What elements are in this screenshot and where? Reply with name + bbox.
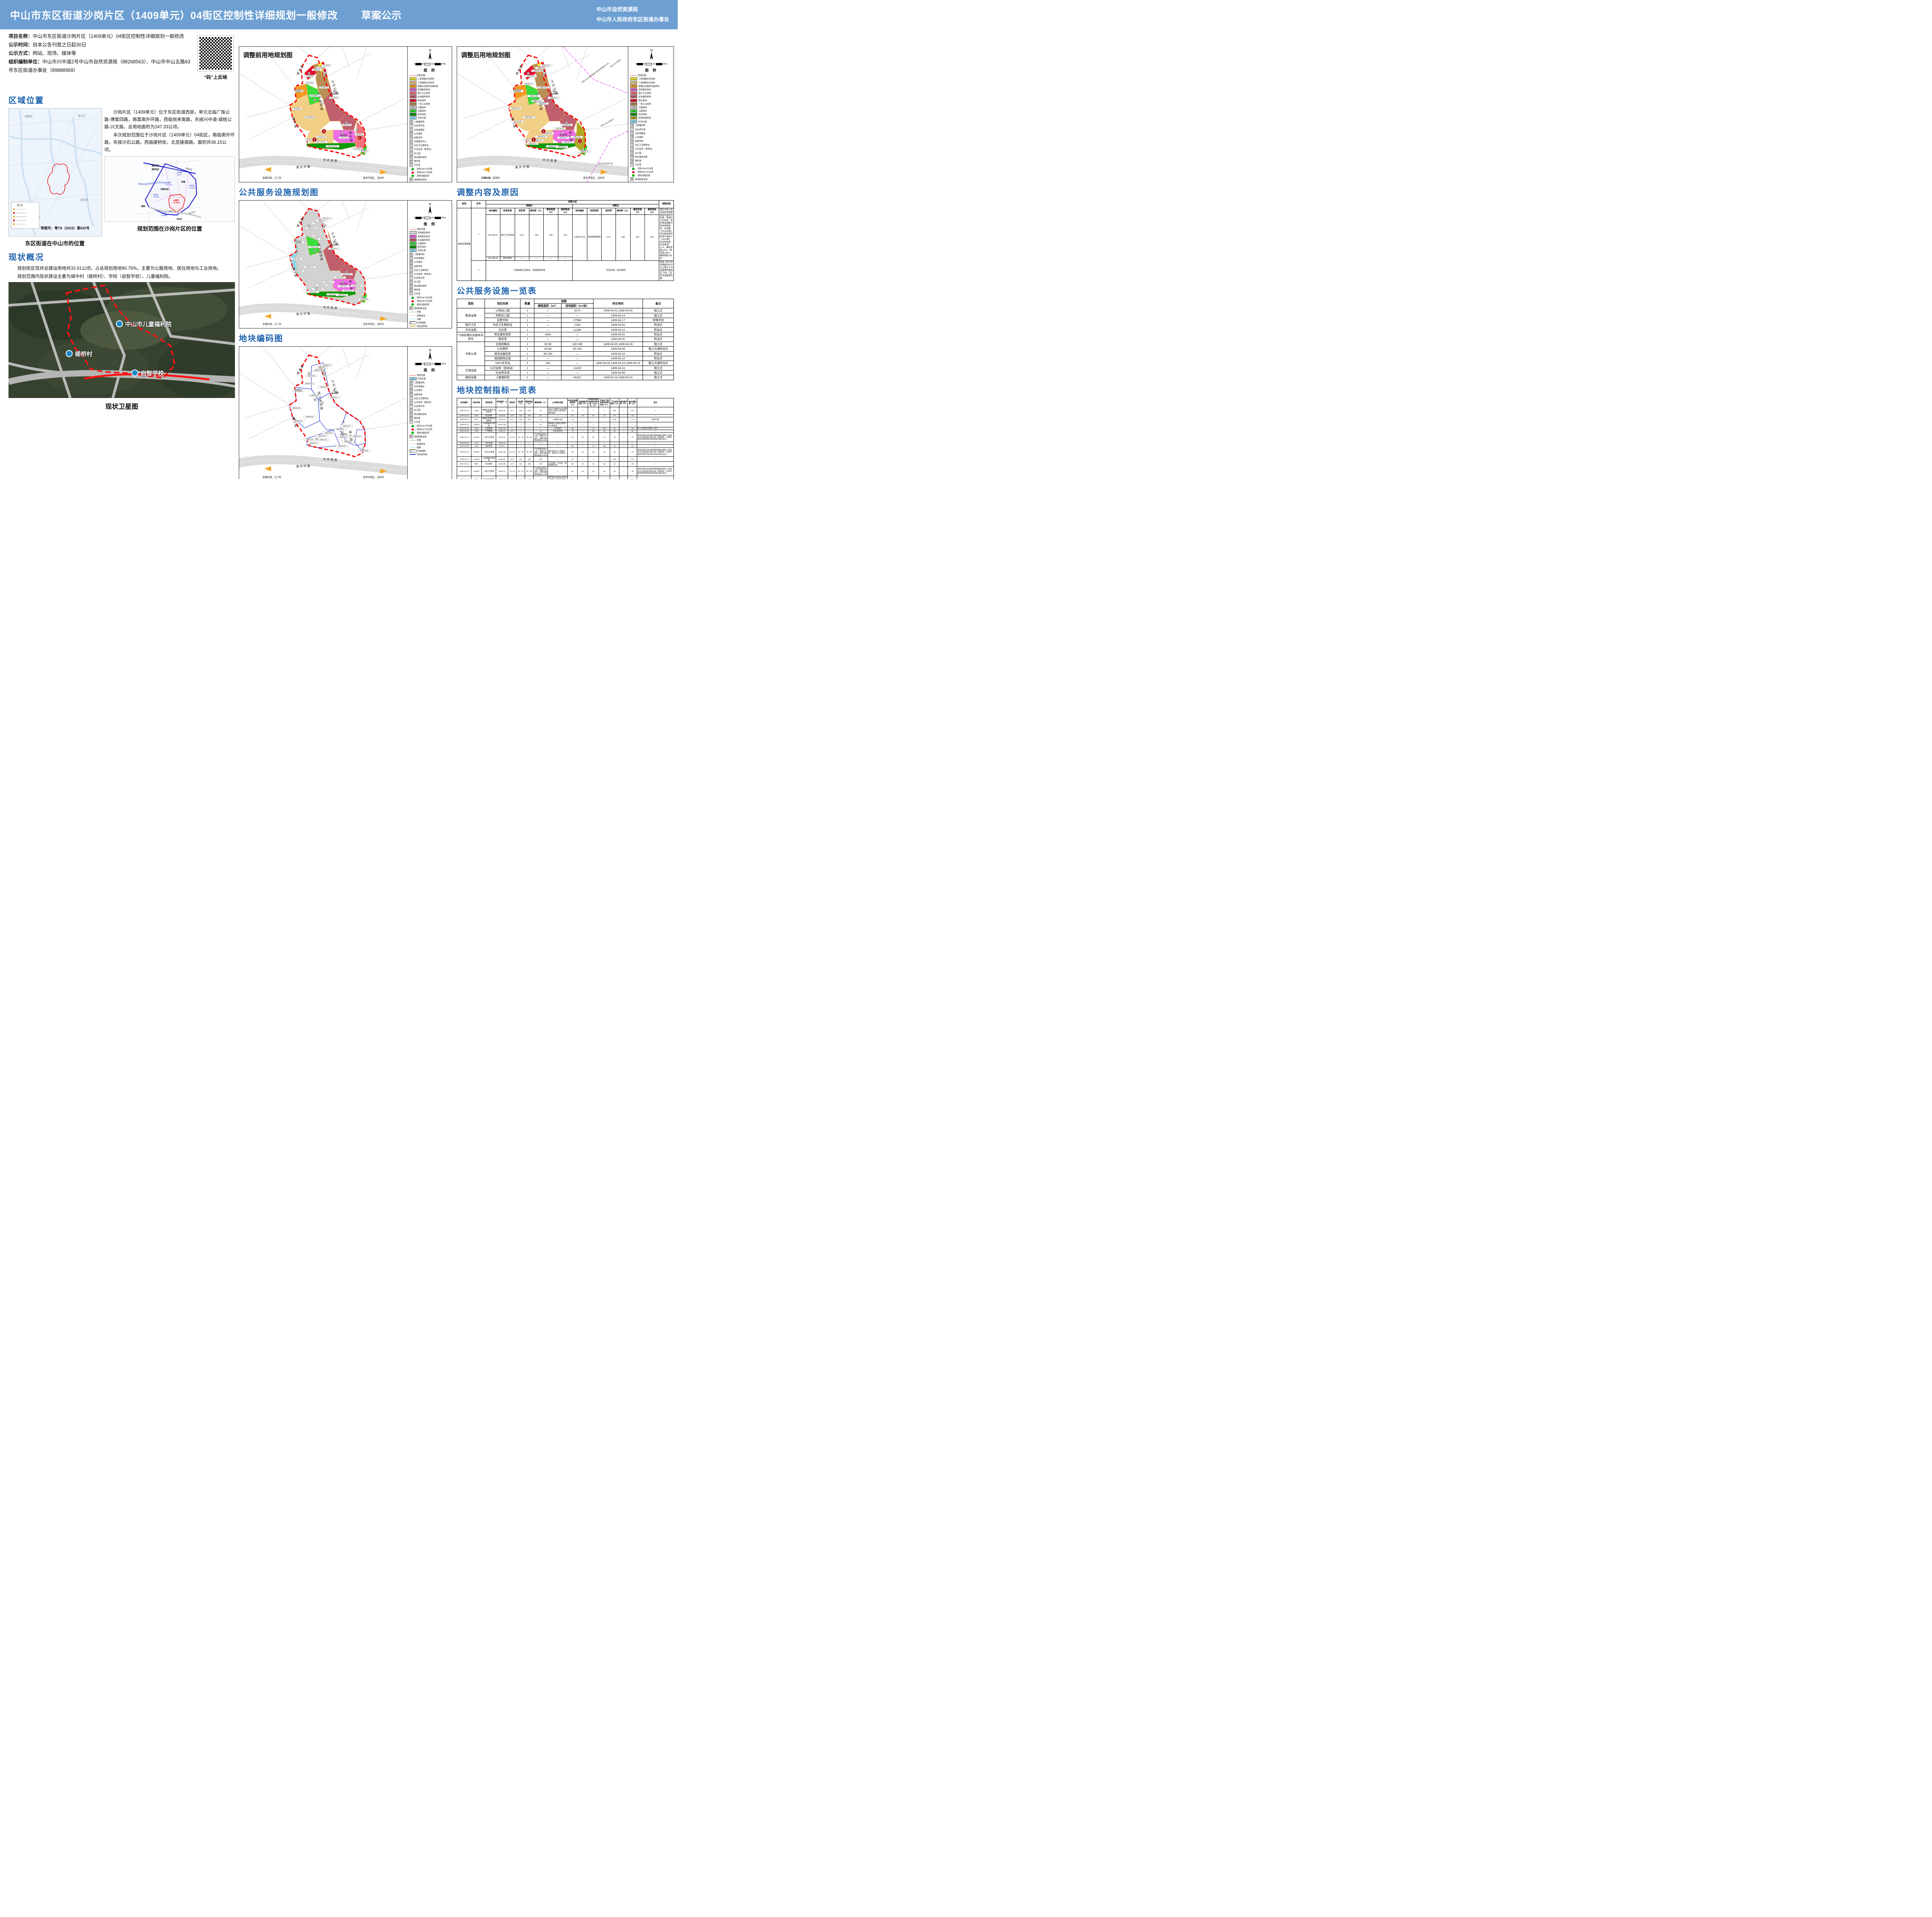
legend-label: 其他特殊用地 xyxy=(638,116,651,119)
legend-label: 防护用地 xyxy=(418,245,426,248)
control-cell: — xyxy=(548,445,568,447)
svg-text:幼: 幼 xyxy=(308,72,310,75)
middle-column: 调整前用地规划图 槎南路沙石公路规划南四路槎桥路博文路中开高速南外环路至横栏镇、… xyxy=(239,32,452,479)
control-cell: 50 xyxy=(567,447,577,457)
legend-item: 0901商业用地 xyxy=(630,99,672,102)
control-row: 1409-04-11070102二类城镇住宅用地8193.55≤2.5≥35≤3… xyxy=(457,457,674,462)
legend-chip-icon: 邮 xyxy=(410,306,413,310)
svg-text:交: 交 xyxy=(322,70,324,73)
legend-label: 公交站场（首末站） xyxy=(414,401,433,404)
legend-chip-icon xyxy=(410,375,416,376)
legend-chip-icon xyxy=(410,296,416,299)
table-cell: 10KV开关站 xyxy=(485,361,520,366)
svg-text:P: P xyxy=(322,402,323,404)
control-cell: — xyxy=(637,442,674,444)
legend-item: 垃垃圾收集站 xyxy=(630,131,672,135)
control-cell: 30 xyxy=(588,414,599,417)
table-cell: 1409-04-12 xyxy=(593,366,643,370)
legend-label: 规划邮政支局 xyxy=(414,307,427,310)
legend-item: 警警务室 xyxy=(410,416,451,420)
legend-label: 其他教育用地 xyxy=(638,88,651,91)
table-cell: 1 xyxy=(520,356,534,361)
legend-chip-icon: 警 xyxy=(630,159,634,163)
control-cell: 45 xyxy=(599,414,610,417)
services-category: 福利设施 xyxy=(457,375,485,380)
legend-label: 垃圾收集站 xyxy=(414,257,425,260)
legend-item: 物物业服务用房 xyxy=(410,284,451,287)
services-category: 文化设施 xyxy=(457,327,485,332)
city-position-map: 顺德区南沙区珠海市斗门区图 例审图号：粤TS（2023）第032号 东区街道在中… xyxy=(9,108,101,247)
legend-label: 沟渠 xyxy=(417,318,421,321)
control-cell: ≥35 xyxy=(516,457,525,462)
legend-item: 福儿童福利院 xyxy=(630,124,672,127)
legend-chip-icon: 文 xyxy=(410,163,413,167)
legend-chip-icon: 1401 xyxy=(410,242,417,245)
legend-item: P社会停车场 xyxy=(410,124,451,128)
table-cell: 用地面积（m²/处） xyxy=(561,303,593,308)
legend-label: 文化室 xyxy=(414,163,420,167)
svg-text:1409-04-21: 1409-04-21 xyxy=(306,439,314,441)
control-cell: 8193.55 xyxy=(496,457,508,462)
section-services-map: 公共服务设施规划图 xyxy=(239,186,452,198)
legend-item: 080405其他教育用地 xyxy=(410,88,451,91)
services-category: 交通设施 xyxy=(457,366,485,375)
control-cell: — xyxy=(578,457,588,462)
control-cell: 通信综合接入设施用房、规划10KV开关房 xyxy=(548,447,568,457)
legend-item: 1401公园用地 xyxy=(410,242,451,245)
control-cell: 产业用房高度≤70米，特殊工艺除外；配套设施建筑高度≤100米 xyxy=(533,433,548,442)
legend-item: 0806医疗卫生用地 xyxy=(630,92,672,95)
table-cell: 规划邮政支局 xyxy=(485,356,520,361)
legend-chip-icon xyxy=(410,300,416,302)
table-cell: — xyxy=(561,332,593,337)
satellite-place-label: 中山市儿童福利院 xyxy=(116,320,172,328)
legend-chip-icon: 1402 xyxy=(410,113,417,116)
control-cell: — xyxy=(637,407,674,414)
table-cell: 医疗卫生用地 xyxy=(500,214,515,257)
svg-text:物: 物 xyxy=(514,89,516,92)
legend-chip-icon: 1409-04-01 xyxy=(410,449,417,452)
control-cell: 12 xyxy=(533,422,548,427)
legend-chip-icon: 幼 xyxy=(630,151,634,155)
table-cell: 1409-04-10 xyxy=(593,351,643,356)
legend-title: 图 例 xyxy=(410,367,451,373)
svg-text:至翠亨新区、深圳市: 至翠亨新区、深圳市 xyxy=(583,176,605,180)
svg-text:1409-04-14: 1409-04-14 xyxy=(330,248,338,250)
table-cell: — xyxy=(534,323,561,327)
control-cell: 40 xyxy=(599,467,610,476)
table-cell: 独立式 xyxy=(643,313,673,318)
legend-label: 道路用地 xyxy=(417,442,425,446)
control-cell: ≥30 xyxy=(610,457,619,462)
legend-chip-icon: 1402 xyxy=(630,113,637,116)
control-cell: — xyxy=(637,430,674,432)
qr-code xyxy=(198,36,233,71)
svg-text:幼: 幼 xyxy=(299,389,301,391)
svg-text:1409-04-04: 1409-04-04 xyxy=(306,416,314,418)
svg-text:1409-04-18: 1409-04-18 xyxy=(318,435,326,437)
region-right: 沙岗片区（1409单元）位于东区街道西部，单元北临广珠公路-博爱四路，南靠南外环… xyxy=(104,108,235,247)
control-cell: 1401 xyxy=(471,427,481,430)
legend-chip-icon xyxy=(410,319,416,319)
table-cell: 2 xyxy=(520,375,534,380)
legend-item: 1202公路用地 xyxy=(410,106,451,109)
control-cell: — xyxy=(578,417,588,422)
control-cell: — xyxy=(619,462,628,467)
control-cell: 75 xyxy=(567,407,577,414)
svg-text:检: 检 xyxy=(356,129,357,131)
before-map-svg: 槎南路沙石公路规划南四路槎桥路博文路中开高速南外环路至横栏镇、江门市至翠亨新区、… xyxy=(239,47,407,182)
svg-text:SG-D5-04: SG-D5-04 xyxy=(306,82,313,84)
legend-item: 规划10KV开关房 xyxy=(410,299,451,303)
legend-item: 规划范围 xyxy=(410,228,451,231)
svg-text:SG-D7-04: SG-D7-04 xyxy=(343,124,350,126)
legend-label: 规划邮政支局 xyxy=(635,178,647,181)
svg-text:1409-04-25: 1409-04-25 xyxy=(338,294,346,296)
legend-chip-icon: 厕 xyxy=(410,389,413,392)
svg-text:幼: 幼 xyxy=(299,89,301,92)
table-cell: 1409-04-05 xyxy=(593,347,643,351)
control-cell: — xyxy=(578,476,588,479)
control-header-cell: 公共服务设施 xyxy=(548,398,568,407)
svg-text:特: 特 xyxy=(342,431,344,434)
legend-label: 物业服务用房 xyxy=(635,155,647,158)
legend-label: 公交站场（首末站） xyxy=(635,147,654,150)
legend-chip-icon: 警 xyxy=(410,416,413,420)
control-cell: — xyxy=(567,442,577,444)
svg-text:1409-04-05: 1409-04-05 xyxy=(530,95,538,97)
legend-item: 垃垃圾收集站 xyxy=(410,128,451,131)
svg-text:邮: 邮 xyxy=(323,73,325,76)
svg-text:神仙井: 神仙井 xyxy=(177,218,182,220)
legend-label: 物业服务用房 xyxy=(414,413,427,416)
control-cell: 35 xyxy=(610,433,619,442)
control-row: 1409-04-04070103三类城镇住宅用地62301.38———12规划独… xyxy=(457,422,674,427)
legend-items: 规划范围070102二类城镇住宅用地070103三类城镇住宅用地0702城镇社区… xyxy=(410,73,451,181)
table-cell: 地块编码 xyxy=(486,208,500,214)
svg-text:2: 2 xyxy=(314,139,315,141)
legend-label: 现状10KV开关房 xyxy=(417,167,432,170)
legend-chip-icon: 垃 xyxy=(410,257,413,260)
svg-text:至翠亨新区、深圳市: 至翠亨新区、深圳市 xyxy=(363,476,384,479)
table-cell: 1409-04-01 xyxy=(593,332,643,337)
svg-text:1409-04-05: 1409-04-05 xyxy=(311,395,319,396)
table-cell: — xyxy=(534,308,561,313)
section-status: 现状概况 xyxy=(9,251,235,263)
svg-text:1409-04-26: 1409-04-26 xyxy=(573,136,581,138)
svg-text:1409-04-02: 1409-04-02 xyxy=(305,383,313,384)
legend-chip-icon: 交 xyxy=(410,401,413,404)
legend-label: 通信设备机房 xyxy=(417,431,429,434)
control-cell: ≤80 xyxy=(533,457,548,462)
adjust-h-type: 类型 xyxy=(457,201,471,208)
legend-label: 规划范围 xyxy=(417,374,425,377)
control-cell: 50 xyxy=(588,430,599,432)
legend-label: 启智学校 xyxy=(635,139,643,143)
control-cell: 100101 xyxy=(471,467,481,476)
control-cell: — xyxy=(619,414,628,417)
legend-chip-icon: 080405 xyxy=(410,88,417,91)
legend-item: 100101一类工业用地 xyxy=(410,102,451,105)
svg-text:1409-04-11: 1409-04-11 xyxy=(318,367,326,369)
control-cell: 1409-04-14 xyxy=(457,476,471,479)
legend-item: 邮规划邮政支局 xyxy=(410,435,451,438)
legend-chip-icon: 福 xyxy=(630,124,634,127)
table-cell: 1409-04-20,1409-04-28 xyxy=(593,342,643,346)
table-cell: — xyxy=(534,327,561,332)
legend-label: 规划10KV开关房 xyxy=(417,299,432,303)
legend-item: 现状10KV开关房 xyxy=(410,296,451,299)
svg-text:1409-04-20: 1409-04-20 xyxy=(314,288,322,290)
control-cell: — xyxy=(599,417,610,422)
svg-text:福: 福 xyxy=(553,90,554,92)
svg-text:博爱四路: 博爱四路 xyxy=(185,167,192,171)
adjust-reason: 落实中级人民法院现状配套基础设施用地性质，将医疗卫生用地、防护绿地调整为其他特殊… xyxy=(659,208,674,260)
svg-text:36.15ha: 36.15ha xyxy=(173,201,180,203)
legend-chip-icon: 0807 xyxy=(410,95,417,98)
svg-text:1409-04-10: 1409-04-10 xyxy=(314,369,322,371)
legend-chip-icon: 1701 xyxy=(410,116,417,119)
legend-chip-icon: 物 xyxy=(630,155,634,158)
control-cell: 50 xyxy=(567,462,577,467)
table-cell: 绿地率（%） xyxy=(529,208,543,214)
svg-text:福: 福 xyxy=(333,90,335,92)
right-column: 调整后用地规划图 槎南路沙石公路规划南四路槎桥路博文路中开高速南外环路至横栏镇、… xyxy=(457,32,674,479)
table-cell: 1409-04-01,1409-04-03 xyxy=(593,308,643,313)
table-cell: 容积率 xyxy=(601,208,616,214)
legend-chip-icon: 邮 xyxy=(630,177,634,181)
legend-item: 规划范围 xyxy=(410,374,451,377)
control-cell: — xyxy=(599,407,610,414)
legend-item: 警警务室 xyxy=(410,160,451,163)
legend-chip-icon: 特 xyxy=(410,393,413,396)
legend-item: 1202公路用地 xyxy=(630,106,672,109)
services-row: 文化设施文化室1—≥12001409-04-12附设式 xyxy=(457,327,674,332)
svg-text:39.48ha: 39.48ha xyxy=(161,214,168,216)
legend-item: 0807社会福利用地 xyxy=(410,95,451,98)
satellite-caption: 现状卫星图 xyxy=(9,401,235,411)
legend-item: 幼幼儿园 xyxy=(630,151,672,155)
services-row: 医疗卫生社区卫生服务站1—≥1501409-04-01附设式 xyxy=(457,323,674,327)
legend-chip-icon xyxy=(410,454,416,455)
control-cell: ≥30 xyxy=(610,407,619,414)
scale-bar: 050100200m xyxy=(410,361,451,367)
control-cell: 社会福利用地 xyxy=(481,476,496,479)
legend-item: 福儿童福利院 xyxy=(410,253,451,256)
control-row: 1409-04-120901商业用地11482.96≤4.0≥15≤50100公… xyxy=(457,462,674,467)
legend-label: 启智学校 xyxy=(414,136,423,139)
svg-text:1409-04-02: 1409-04-02 xyxy=(305,235,313,236)
services-row: 行政管理社会服务及商业物业服务用房1≥500—1409-04-01附设式 xyxy=(457,332,674,337)
district-map-caption: 规划范围在沙岗片区的位置 xyxy=(104,225,235,233)
legend-item: 福儿童福利院 xyxy=(410,120,451,124)
legend-label: 公共厕所 xyxy=(414,132,423,135)
svg-text:02街区: 02街区 xyxy=(161,212,167,214)
control-row: 1409-04-140807社会福利用地26522.68≤1.5≥40≤3024… xyxy=(457,476,674,479)
control-cell: 100 xyxy=(533,462,548,467)
control-cell: 35 xyxy=(610,447,619,457)
legend-label: 社会停车场 xyxy=(414,276,425,279)
svg-text:交: 交 xyxy=(542,70,543,73)
svg-text:1409-04-13: 1409-04-13 xyxy=(320,386,328,388)
svg-text:至翠亨新区、深圳市: 至翠亨新区、深圳市 xyxy=(363,176,384,180)
legend-item: 卫社区卫生服务站 xyxy=(630,143,672,147)
services-map-panel: 槎南路沙石公路规划南四路槎桥路博文路中开高速南外环路至横栏镇、江门市至翠亨新区、… xyxy=(239,200,452,328)
legend-chip-icon: 文 xyxy=(410,292,413,295)
control-cell: 30 xyxy=(578,462,588,467)
table-cell: 容积率 xyxy=(515,208,529,214)
table-cell: 垃圾收集站 xyxy=(485,342,520,346)
control-cell: — xyxy=(588,476,599,479)
legend-item: 规划10KV开关房 xyxy=(410,171,451,174)
control-cell: — xyxy=(525,427,533,430)
control-cell: — xyxy=(610,422,619,427)
place-dot-icon xyxy=(131,369,138,376)
legend-label: 警务室 xyxy=(414,160,420,163)
adjust-h-reason: 调整原因 xyxy=(659,201,674,208)
legend-label: 三类城镇住宅用地 xyxy=(418,81,434,84)
table-cell: — xyxy=(561,313,593,318)
control-header-cell: 年径流污染去除率/控制率（以SS计，%） xyxy=(588,398,599,407)
north-arrow-icon: N xyxy=(410,202,451,215)
control-cell: 50 xyxy=(567,467,577,476)
control-cell: ≥35 xyxy=(516,407,525,414)
svg-text:槎南路: 槎南路 xyxy=(296,363,304,375)
control-cell: 1.0-4.0 xyxy=(508,447,516,457)
svg-text:1409-04-17: 1409-04-17 xyxy=(340,285,347,287)
legend-label: 其他教育用地 xyxy=(418,88,430,91)
table-cell: 1409-04-06 xyxy=(593,370,643,375)
legend-chip-icon: 1701 xyxy=(410,249,417,252)
legend-label: 医疗卫生用地 xyxy=(418,92,430,95)
status-para-2: 规划范围内现状建设主要为城中村（槎桥村）、学校（启智学校）、儿童福利院。 xyxy=(9,273,235,281)
legend-item: 规划10KV开关房 xyxy=(410,428,451,431)
control-cell: 三类城镇住宅用地 xyxy=(481,422,496,427)
control-cell: 1409-04-02 xyxy=(457,414,471,417)
control-cell: 3173.22 xyxy=(496,417,508,422)
legend-label: 二类城镇住宅用地 xyxy=(418,77,434,80)
legend-chip-icon: 080405 xyxy=(630,88,637,91)
control-cell: 商业用地 xyxy=(481,414,496,417)
info-label: 组织编制单位： xyxy=(9,59,43,65)
svg-text:N: N xyxy=(429,49,431,52)
table-cell: ≥40 xyxy=(534,361,561,366)
table-cell: ≥1200 xyxy=(561,327,593,332)
section-region-location: 区域位置 xyxy=(9,94,235,106)
legend-label: 规划邮政支局 xyxy=(414,178,427,181)
legend-item: 交公交站场（首末站） xyxy=(410,272,451,276)
before-map-legend: N050100200m图 例规划范围070102二类城镇住宅用地070103三类… xyxy=(407,47,452,182)
control-header-cell: 容积率 xyxy=(508,398,516,407)
legend-item: 交公交站场（首末站） xyxy=(630,147,672,151)
svg-text:1409-04-04: 1409-04-04 xyxy=(306,266,314,268)
svg-text:槎桥路: 槎桥路 xyxy=(291,416,298,429)
control-header-cell: 可渗透面积比例（%） xyxy=(578,398,588,407)
svg-text:厕: 厕 xyxy=(314,250,316,252)
info-value: 自本公告刊登之日起30日 xyxy=(33,42,87,48)
qr-block: “码”上反映 xyxy=(197,36,234,82)
legend-chip-icon: 垃 xyxy=(410,385,413,388)
table-cell: 调整后 xyxy=(573,204,659,208)
control-cell: 1409-04-03 xyxy=(457,417,471,422)
legend-label: 其他教育用地 xyxy=(418,235,430,238)
svg-text:1409-04-18: 1409-04-18 xyxy=(318,284,326,286)
control-cell: ≤2.5 xyxy=(508,457,516,462)
legend-chip-icon xyxy=(410,428,416,430)
control-cell: 城镇社区服务设施用地 xyxy=(481,407,496,414)
control-cell: — xyxy=(619,430,628,432)
legend-item: 卫社区卫生服务站 xyxy=(410,144,451,147)
table-cell: ≤30 xyxy=(630,214,645,260)
control-cell: 24 xyxy=(533,417,548,422)
table-cell: 独立式或附设式 xyxy=(643,361,673,366)
svg-text:1409-04-15: 1409-04-15 xyxy=(563,124,571,126)
svg-text:1409-04-22: 1409-04-22 xyxy=(529,143,537,145)
control-cell: ≥40 xyxy=(516,476,525,479)
section-coding-map: 地块编码图 xyxy=(239,332,452,344)
svg-text:1409-04-09: 1409-04-09 xyxy=(293,258,300,260)
control-cell: 30 xyxy=(610,445,619,447)
control-row: 1409-04-020901商业用地9111.59≤3.0≥15≤5050—50… xyxy=(457,414,674,417)
control-cell: 70 xyxy=(588,427,599,430)
legend-item: 厕公共厕所 xyxy=(410,132,451,135)
control-cell: 公园用地 xyxy=(481,427,496,430)
svg-text:1409-04-16: 1409-04-16 xyxy=(556,128,564,129)
legend-chip-icon: 厕 xyxy=(630,135,634,139)
legend-label: 规划范围 xyxy=(638,74,646,77)
control-row: 1409-04-030702城镇社区服务设施用地3173.22≤1.0≥35≤3… xyxy=(457,417,674,422)
legend-label: 三类城镇住宅用地 xyxy=(638,81,655,84)
control-cell: 防护用地 xyxy=(481,445,496,447)
control-cell: — xyxy=(578,430,588,432)
region-para-1: 沙岗片区（1409单元）位于东区街道西部，单元北临广珠公路-博爱四路，南靠南外环… xyxy=(104,109,235,131)
table-cell: 1 xyxy=(520,337,534,342)
control-cell: 商业用地 xyxy=(481,462,496,467)
org-line-1: 中山市自然资源局 xyxy=(596,5,669,15)
control-cell: ≥15 xyxy=(516,462,525,467)
table-cell: 独立式或附设式 xyxy=(643,347,673,351)
control-cell: 50 xyxy=(567,433,577,442)
control-cell: 6610.50 xyxy=(496,407,508,414)
legend-chip-icon xyxy=(410,440,416,441)
table-cell: 建筑密度（%） xyxy=(544,208,558,214)
legend-label: 垃圾收集站 xyxy=(635,132,645,135)
legend-item: 1701河流水面 xyxy=(410,377,451,380)
svg-text:49.29ha: 49.29ha xyxy=(153,196,160,198)
control-cell: — xyxy=(637,422,674,427)
control-cell: 用地内防护绿化带所种树种建议参照《绿美中山生态建设实施方案》树种落实，地块内建筑… xyxy=(637,447,674,457)
legend-label: 幼儿园 xyxy=(414,280,420,283)
legend-label: 规划范围 xyxy=(417,228,425,231)
table-cell: 1 xyxy=(520,370,534,375)
legend-item: 厕公共厕所 xyxy=(410,260,451,264)
control-cell: 3479.26 xyxy=(496,433,508,442)
table-cell: — xyxy=(561,337,593,342)
control-cell: 85 xyxy=(567,427,577,430)
control-cell: — xyxy=(516,430,525,432)
legend-label: 公路用地 xyxy=(418,106,426,109)
control-cell: 90 xyxy=(628,430,637,432)
control-cell: 70 xyxy=(567,476,577,479)
svg-text:迎阳社区: 迎阳社区 xyxy=(151,168,159,171)
table-cell: 1409-04-26 xyxy=(573,214,587,260)
table-cell: 1409-04-17 xyxy=(593,318,643,323)
legend-chip-icon: 0806 xyxy=(410,92,417,95)
legend-item: 检法医鉴定中心 xyxy=(410,140,451,143)
table-cell: — xyxy=(534,318,561,323)
svg-text:1409-04-28: 1409-04-28 xyxy=(360,298,368,300)
svg-text:2: 2 xyxy=(533,139,534,141)
